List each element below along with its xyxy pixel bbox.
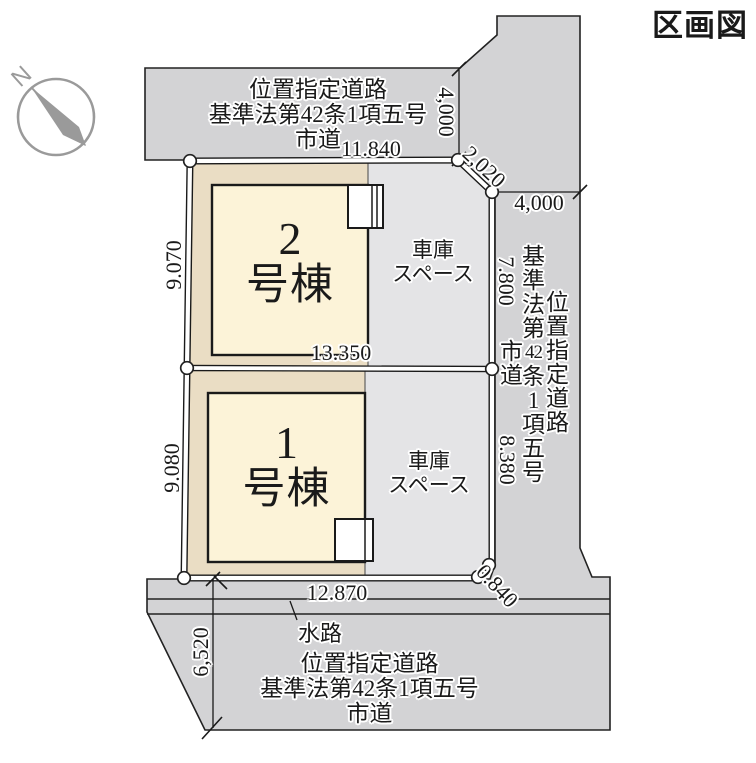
plot-plan: 区画図 N 位置指定道路基準法第42条1項五号市道 位置指定道路基準法第42条1… [0,0,756,763]
garage-area-upper-shape [368,160,492,368]
building-1-porch [335,519,373,561]
parcel-division-inner [186,368,492,369]
plan-drawing [0,0,756,763]
building-2-porch [348,185,383,228]
building-2-shape [212,185,368,355]
compass-icon [18,79,94,155]
garage-area-lower-shape [365,369,492,578]
